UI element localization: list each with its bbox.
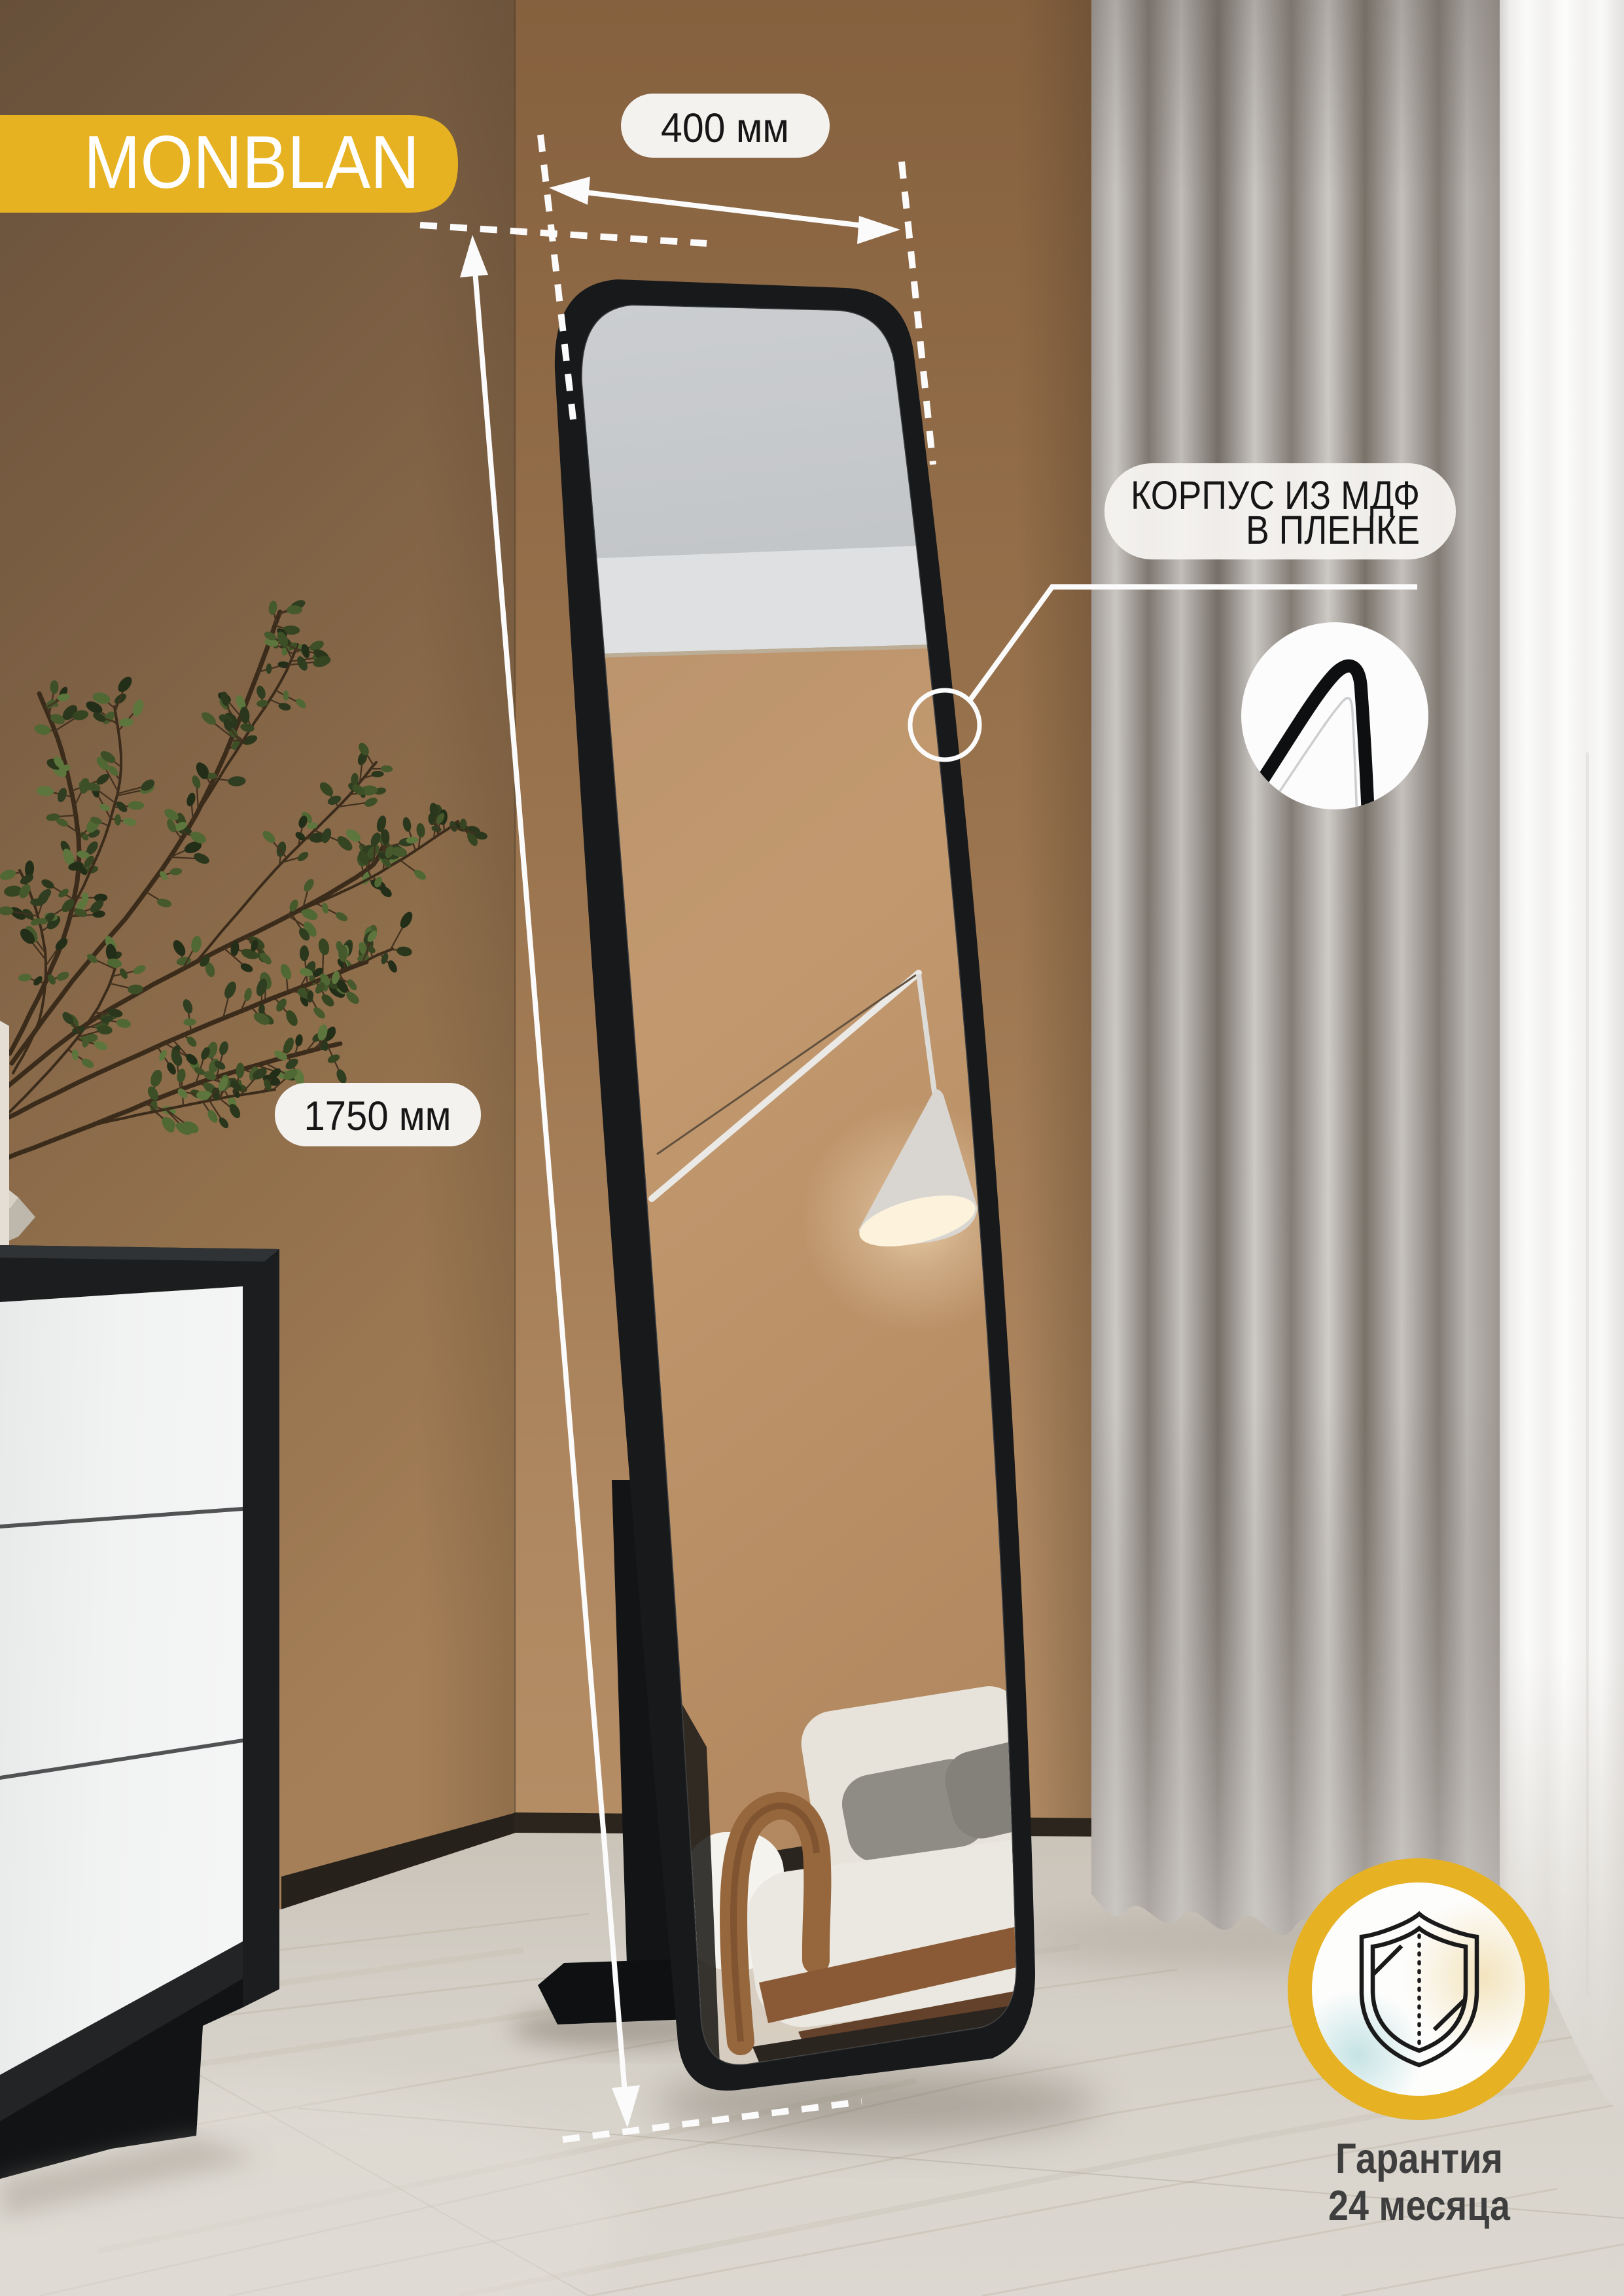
svg-text:В ПЛЕНКЕ: В ПЛЕНКЕ [1246,508,1420,552]
svg-text:Гарантия: Гарантия [1335,2134,1503,2182]
svg-text:1750 мм: 1750 мм [304,1093,451,1139]
svg-text:24 месяца: 24 месяца [1328,2181,1511,2229]
svg-text:MONBLAN: MONBLAN [84,121,419,204]
svg-text:400 мм: 400 мм [661,105,789,151]
